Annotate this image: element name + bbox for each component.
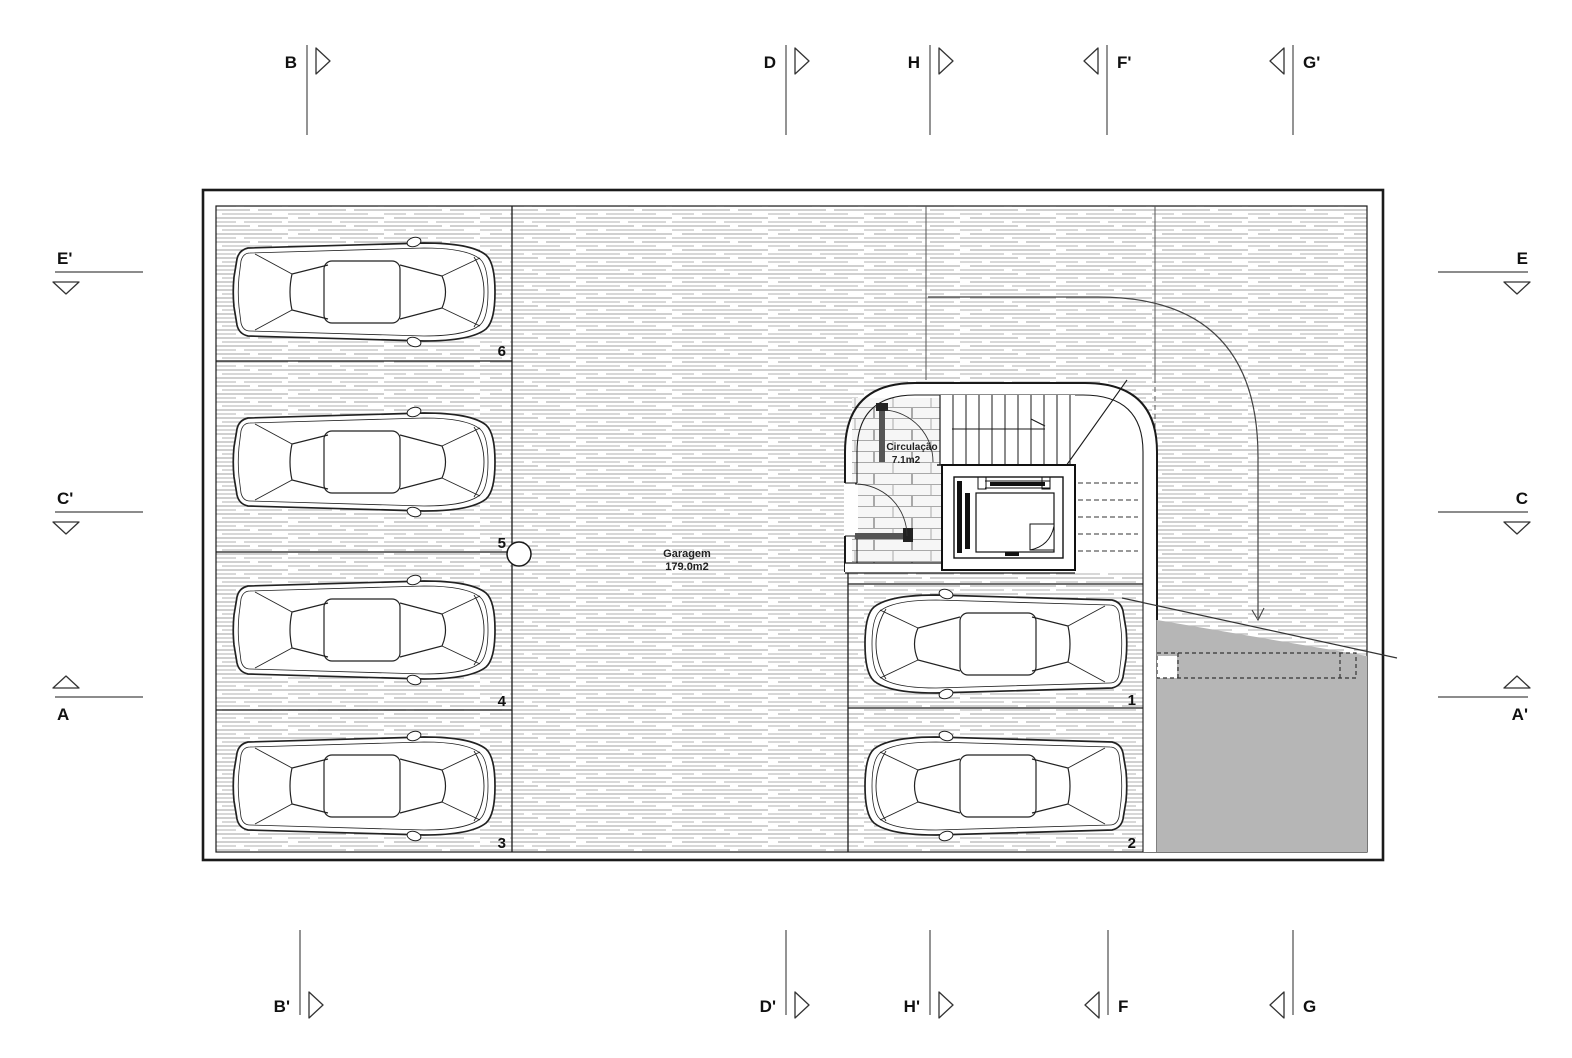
section-label: B' [274,997,290,1016]
floor-plan-svg: Garagem 179.0m2 Circulação 7.1m2 6 5 4 3… [0,0,1572,1058]
section-label: C [1516,489,1528,508]
section-label: D [764,53,776,72]
section-marker-left-e-prime: E' [53,249,143,294]
section-arrow-icon [53,676,79,688]
stall-number-3: 3 [498,835,506,852]
section-marker-bottom-g: G [1270,930,1316,1018]
section-arrow-icon [1085,992,1099,1018]
section-arrow-icon [1504,282,1530,294]
section-label: H [908,53,920,72]
section-marker-bottom-h-prime: H' [904,930,953,1018]
section-marker-right-a-prime: A' [1438,676,1530,724]
section-marker-top-b: B [285,45,330,135]
section-arrow-icon [939,992,953,1018]
section-marker-left-a: A [53,676,143,724]
section-label: B [285,53,297,72]
section-marker-top-g-prime: G' [1270,45,1320,135]
circulation-floor [852,398,942,565]
section-label: F [1118,997,1128,1016]
section-label: F' [1117,53,1131,72]
section-label: E [1517,249,1528,268]
stall-number-1: 1 [1128,692,1136,709]
circulation-area-label: 7.1m2 [892,455,921,466]
section-marker-right-e: E [1438,249,1530,294]
section-arrow-icon [795,48,809,74]
section-label: G' [1303,53,1320,72]
ramp-fill [1157,620,1367,852]
section-arrow-icon [316,48,330,74]
section-arrow-icon [1504,676,1530,688]
stall-number-4: 4 [498,693,507,710]
section-marker-bottom-f: F [1085,930,1128,1018]
car-5 [233,406,495,518]
section-label: C' [57,489,73,508]
stall-number-6: 6 [498,343,506,360]
section-label: G [1303,997,1316,1016]
section-arrow-icon [939,48,953,74]
floor-plan-canvas: Garagem 179.0m2 Circulação 7.1m2 6 5 4 3… [0,0,1572,1058]
section-arrow-icon [795,992,809,1018]
section-marker-top-h: H [908,45,953,135]
car-3 [233,730,495,842]
car-2 [865,730,1127,842]
section-arrow-icon [309,992,323,1018]
circulation-label: Circulação [886,442,937,453]
section-arrow-icon [1084,48,1098,74]
car-6 [233,236,495,348]
plan-body: Garagem 179.0m2 Circulação 7.1m2 6 5 4 3… [203,190,1397,860]
section-marker-bottom-d-prime: D' [760,930,809,1018]
section-marker-top-f-prime: F' [1084,45,1131,135]
section-arrow-icon [53,522,79,534]
section-arrow-icon [1270,48,1284,74]
section-marker-left-c-prime: C' [53,489,143,534]
column-circle [507,542,531,566]
section-label: A' [1512,705,1528,724]
stall-number-2: 2 [1128,835,1136,852]
car-1 [865,588,1127,700]
section-arrow-icon [1504,522,1530,534]
section-label: D' [760,997,776,1016]
section-arrow-icon [53,282,79,294]
section-marker-top-d: D [764,45,809,135]
section-label: A [57,705,69,724]
section-label: E' [57,249,72,268]
section-label: H' [904,997,920,1016]
section-arrow-icon [1270,992,1284,1018]
garage-label: Garagem [663,548,711,560]
section-marker-bottom-b-prime: B' [274,930,323,1018]
stall-number-5: 5 [498,535,506,552]
car-4 [233,574,495,686]
elevator-shaft [942,465,1075,570]
section-marker-right-c: C [1438,489,1530,534]
garage-area-label: 179.0m2 [665,561,708,573]
